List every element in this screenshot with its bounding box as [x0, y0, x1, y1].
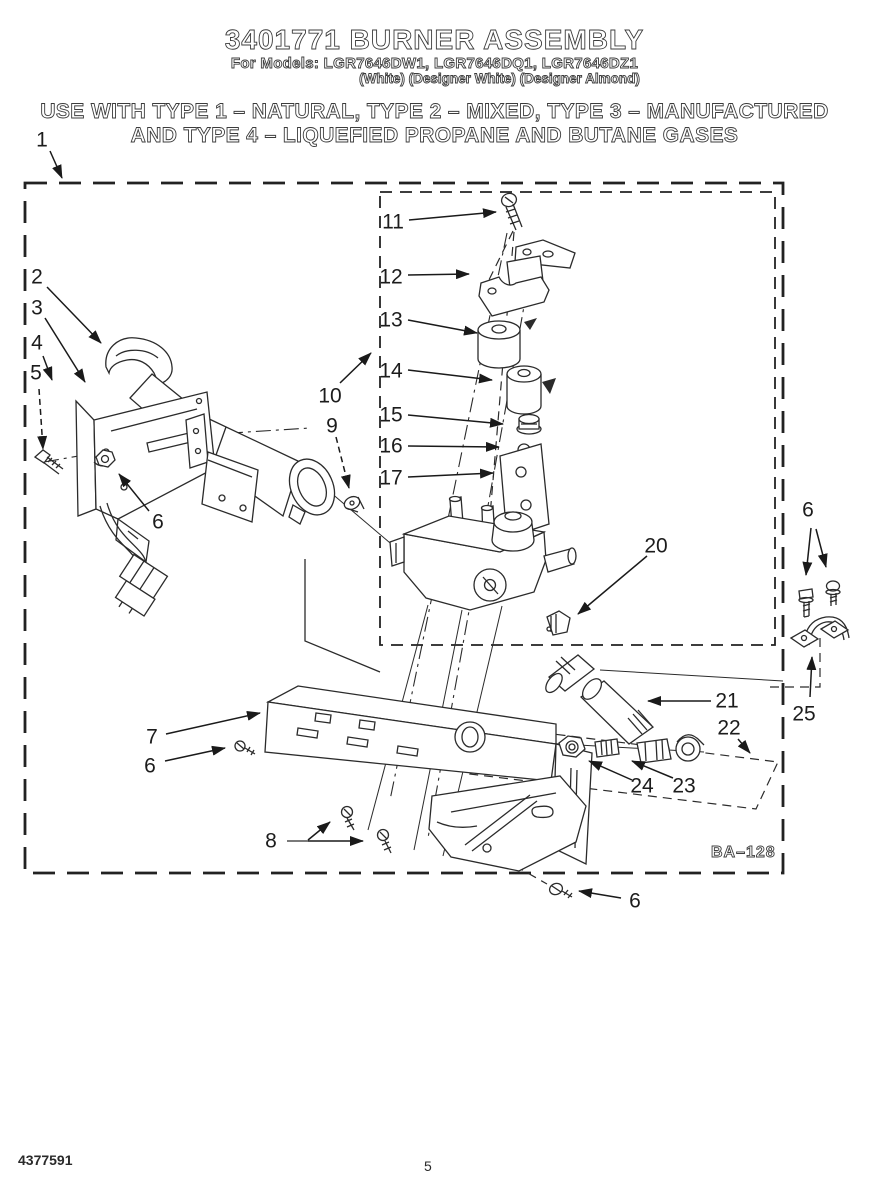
callout-5: 5: [30, 363, 42, 384]
callout-20: 20: [644, 536, 667, 557]
finishes-line: (White) (Designer White) (Designer Almon…: [130, 71, 869, 86]
callout-2: 2: [31, 267, 43, 288]
callout-6-right: 6: [802, 500, 814, 521]
screws-part6-right: [799, 581, 840, 617]
page-number: 5: [424, 1158, 432, 1174]
screw-part5: [35, 450, 63, 474]
callout-14: 14: [379, 361, 402, 382]
callout-11: 11: [382, 212, 404, 233]
screws-part8: [342, 807, 392, 854]
callout-15: 15: [379, 405, 402, 426]
callout-6-bottom-left: 6: [144, 756, 156, 777]
callout-24: 24: [630, 776, 653, 797]
callout-12: 12: [379, 267, 402, 288]
callout-3: 3: [31, 298, 43, 319]
screw-part6-bottom-center: [548, 882, 572, 898]
callout-8: 8: [265, 831, 277, 852]
callout-4: 4: [31, 333, 43, 354]
coil-part13: [478, 318, 537, 368]
callout-9: 9: [326, 416, 338, 437]
screw-part11: [500, 192, 522, 230]
drawing-reference-code: BA–128: [711, 844, 776, 862]
coil-part14: [507, 366, 556, 414]
orifice-part9: [342, 494, 364, 512]
callout-17: 17: [379, 468, 402, 489]
gas-usage-line-1: USE WITH TYPE 1 – NATURAL, TYPE 2 – MIXE…: [0, 100, 869, 124]
callout-6-mid-left: 6: [152, 512, 164, 533]
callout-25: 25: [792, 704, 815, 725]
gas-pipe-part21: [543, 655, 653, 744]
exploded-diagram: [0, 130, 869, 940]
burner-horn: [106, 338, 172, 384]
screw-part6-bottom-left: [235, 741, 255, 755]
tube-end-bracket: [186, 414, 208, 468]
callout-16: 16: [379, 436, 402, 457]
callout-10: 10: [318, 386, 341, 407]
fittings-part23: [595, 735, 704, 763]
gas-valve: [390, 444, 576, 610]
models-line: For Models: LGR7646DW1, LGR7646DQ1, LGR7…: [0, 55, 869, 72]
callout-23: 23: [672, 776, 695, 797]
document-number: 4377591: [18, 1152, 73, 1168]
mounting-plate-assembly: [265, 559, 592, 871]
grommet-part15: [517, 415, 541, 435]
callout-13: 13: [379, 310, 402, 331]
callout-21: 21: [715, 691, 738, 712]
callout-1: 1: [36, 130, 48, 151]
fitting-part20: [547, 611, 570, 635]
assembly-boundary-outer: [25, 183, 783, 873]
callout-22: 22: [717, 718, 740, 739]
callout-6-bottom-center: 6: [629, 891, 641, 912]
callout-7: 7: [146, 727, 158, 748]
parts-catalog-page: 3401771 BURNER ASSEMBLY For Models: LGR7…: [0, 0, 869, 1200]
page-title: 3401771 BURNER ASSEMBLY: [0, 24, 869, 56]
bracket-part12: [479, 240, 575, 316]
